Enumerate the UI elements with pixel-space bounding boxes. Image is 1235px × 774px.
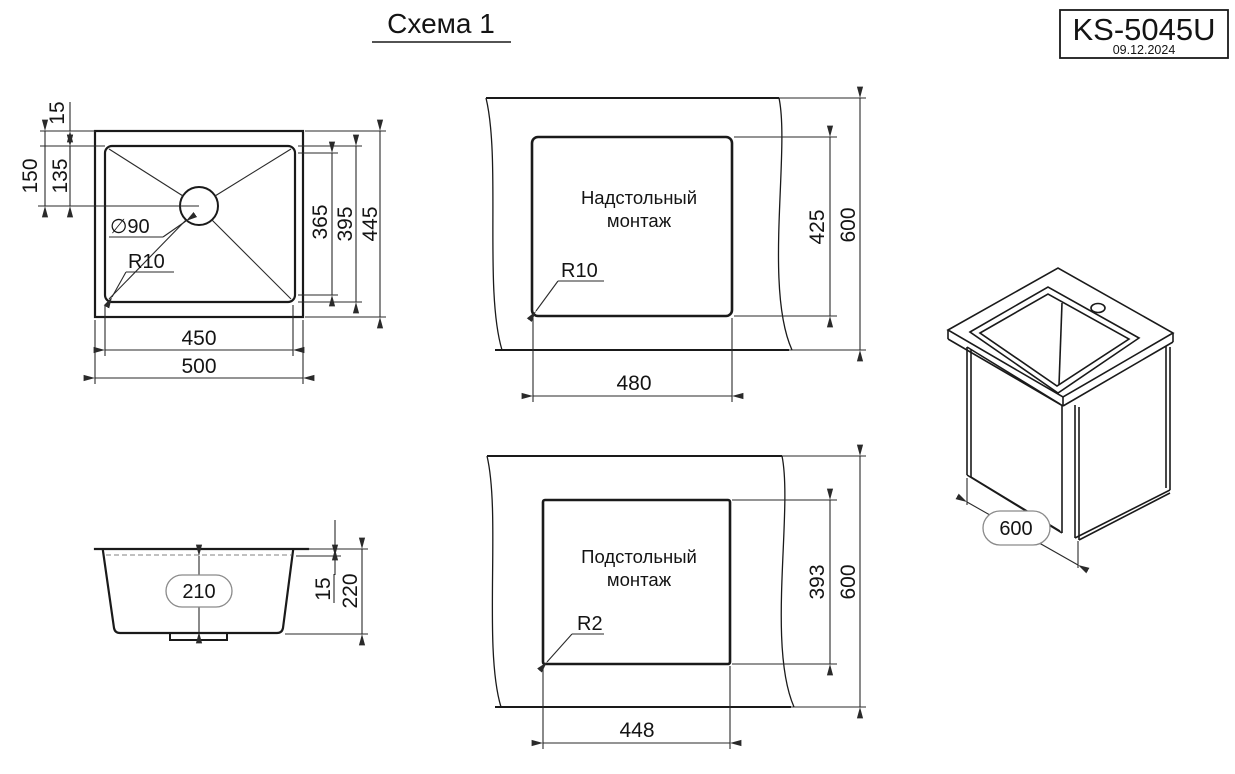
undermount-view: Подстольный монтаж R2 393 600 448 xyxy=(487,456,866,749)
drain-diameter-callout: ∅90 xyxy=(109,216,186,238)
drain-diameter-label: ∅90 xyxy=(110,216,150,238)
faucet-hole xyxy=(1091,304,1105,313)
dim-text: 365 xyxy=(309,204,332,239)
cabinet-right-panel xyxy=(1075,346,1170,540)
break-line-left xyxy=(487,456,501,707)
drawing-sheet: Схема 1 KS-5045U 09.12.2024 xyxy=(0,0,1235,774)
dim-drain-offset-135: 135 xyxy=(49,146,72,206)
corner-radius-callout: R10 xyxy=(112,251,174,297)
dim-bowl-width-450: 450 xyxy=(105,327,293,350)
dim-bowl-flat-365: 365 xyxy=(309,153,332,295)
dim-outer-height-445: 445 xyxy=(359,131,382,317)
dim-bowl-depth-210: 210 xyxy=(166,556,232,632)
model-number: KS-5045U xyxy=(1072,12,1215,47)
break-line-right xyxy=(781,456,794,707)
bowl-interior-edge xyxy=(1059,303,1062,385)
dim-text: 450 xyxy=(181,327,216,350)
dim-counter-depth-600: 600 xyxy=(837,456,860,707)
mount-type-label: Подстольный xyxy=(581,546,697,567)
radius-label: R10 xyxy=(561,260,598,282)
top-view: 15 150 135 365 395 445 450 xyxy=(19,101,386,384)
dim-text: 210 xyxy=(182,581,215,603)
dim-text: 220 xyxy=(339,573,362,608)
radius-label: R2 xyxy=(577,613,603,635)
mount-type-label2: монтаж xyxy=(607,210,672,231)
dim-outer-width-500: 500 xyxy=(95,355,303,378)
mount-type-label: Надстольный xyxy=(581,187,697,208)
side-view: 210 15 220 xyxy=(95,520,368,640)
sheet-title: Схема 1 xyxy=(372,8,511,42)
drawing-date: 09.12.2024 xyxy=(1113,43,1176,57)
dim-text: 395 xyxy=(334,206,357,241)
dim-text: 600 xyxy=(837,207,860,242)
cabinet-left-panel xyxy=(967,347,1062,533)
dim-text: 480 xyxy=(616,372,651,395)
dim-text: 15 xyxy=(46,101,69,124)
dim-counter-depth-600: 600 xyxy=(837,98,860,350)
dim-text: 150 xyxy=(19,158,42,193)
dim-drain-offset-150: 150 xyxy=(19,131,45,206)
dim-text: 445 xyxy=(359,206,382,241)
corner-radius-callout: R10 xyxy=(536,260,604,311)
mount-type-label2: монтаж xyxy=(607,569,672,590)
corner-radius-callout: R2 xyxy=(547,613,604,662)
dim-text: 393 xyxy=(806,564,829,599)
dim-text: 135 xyxy=(49,158,72,193)
dim-text: 600 xyxy=(837,564,860,599)
break-line-left xyxy=(486,98,502,350)
dim-text: 15 xyxy=(312,577,335,600)
dim-cutout-height-425: 425 xyxy=(806,137,830,316)
dim-cutout-height-393: 393 xyxy=(806,500,830,664)
dim-bowl-height-395: 395 xyxy=(334,146,357,302)
dim-cutout-width-480: 480 xyxy=(533,372,732,396)
dim-text: 500 xyxy=(181,355,216,378)
dim-text: 425 xyxy=(806,209,829,244)
dim-text: 600 xyxy=(999,518,1032,540)
page-title: Схема 1 xyxy=(387,8,495,39)
radius-label: R10 xyxy=(128,251,165,273)
dim-text: 448 xyxy=(619,719,654,742)
dim-rim-15: 15 xyxy=(312,520,335,603)
drawing-canvas: Схема 1 KS-5045U 09.12.2024 xyxy=(0,0,1235,774)
dim-total-height-220: 220 xyxy=(339,549,362,634)
break-line-right xyxy=(778,98,792,350)
isometric-view: 600 xyxy=(948,268,1173,568)
title-block: KS-5045U 09.12.2024 xyxy=(1060,10,1228,58)
overmount-view: Надстольный монтаж R10 425 600 480 xyxy=(486,98,866,402)
dim-cutout-width-448: 448 xyxy=(543,719,730,743)
